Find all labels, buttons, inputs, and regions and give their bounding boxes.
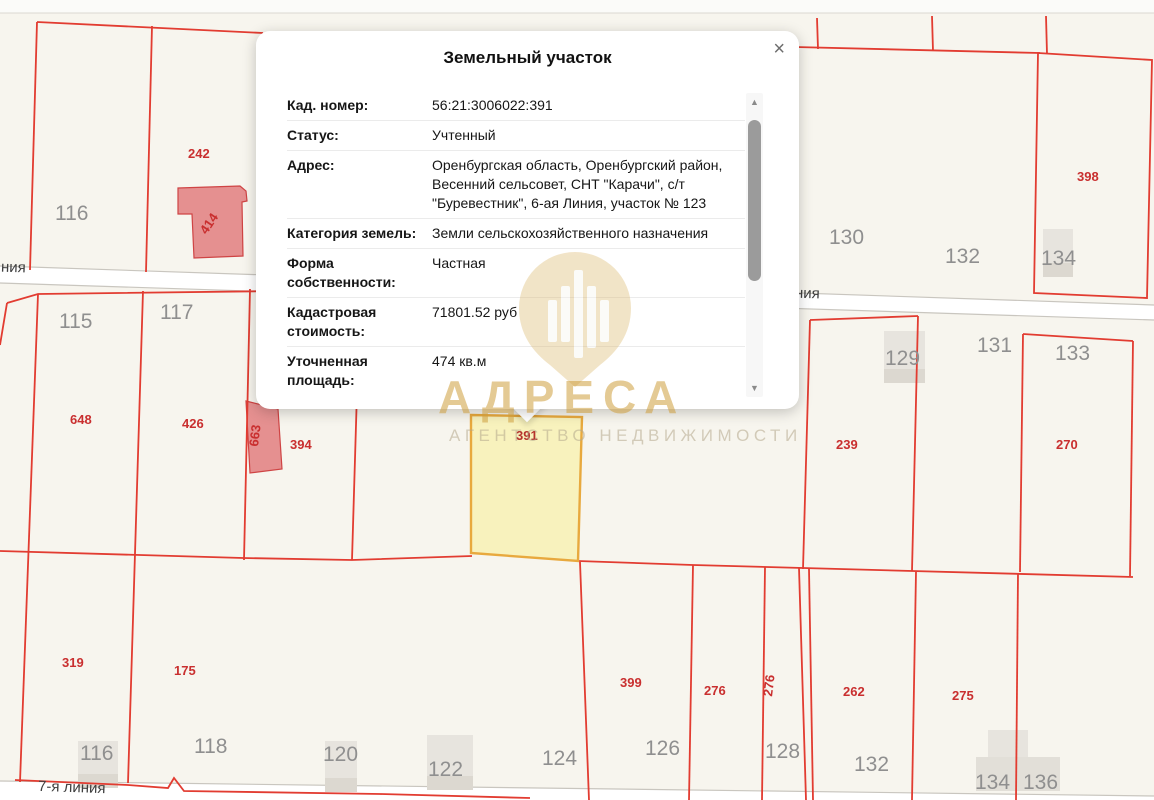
map-top-band (0, 0, 1154, 13)
row-label: Кадастровая стоимость: (287, 303, 432, 341)
table-row: Кад. номер: 56:21:3006022:391 (287, 91, 745, 121)
table-row: Кадастровая стоимость: 71801.52 руб (287, 298, 745, 347)
row-label: Кад. номер: (287, 96, 432, 115)
table-row: Категория земель: Земли сельскохозяйстве… (287, 219, 745, 249)
row-label: Статус: (287, 126, 432, 145)
scroll-down-icon[interactable]: ▼ (746, 383, 763, 393)
row-value: 71801.52 руб (432, 303, 745, 341)
table-row: Форма собственности: Частная (287, 249, 745, 298)
row-value: 56:21:3006022:391 (432, 96, 745, 115)
parcel-info-popup: Земельный участок × Кад. номер: 56:21:30… (256, 31, 799, 409)
row-value: Оренбургская область, Оренбургский район… (432, 156, 745, 213)
cadastral-map-app: ния ния 7-я линия 242 414 648 426 663 39… (0, 0, 1154, 800)
popup-title: Земельный участок (256, 48, 799, 68)
scroll-up-icon[interactable]: ▲ (746, 97, 763, 107)
scrollbar-thumb[interactable] (748, 120, 761, 281)
table-row: Адрес: Оренбургская область, Оренбургски… (287, 151, 745, 219)
row-label: Категория земель: (287, 224, 432, 243)
popup-scrollbar[interactable]: ▲ ▼ (746, 93, 763, 397)
row-value: Учтенный (432, 126, 745, 145)
row-value: 474 кв.м (432, 352, 745, 390)
row-value: Частная (432, 254, 745, 292)
close-icon[interactable]: × (773, 39, 785, 59)
row-label: Уточненная площадь: (287, 352, 432, 390)
table-row: Статус: Учтенный (287, 121, 745, 151)
table-row: Уточненная площадь: 474 кв.м (287, 347, 745, 395)
row-value: Земли сельскохозяйственного назначения (432, 224, 745, 243)
row-label: Форма собственности: (287, 254, 432, 292)
popup-attribute-table: Кад. номер: 56:21:3006022:391 Статус: Уч… (287, 91, 745, 395)
row-label: Адрес: (287, 156, 432, 213)
highlighted-parcel-391[interactable] (471, 415, 582, 561)
